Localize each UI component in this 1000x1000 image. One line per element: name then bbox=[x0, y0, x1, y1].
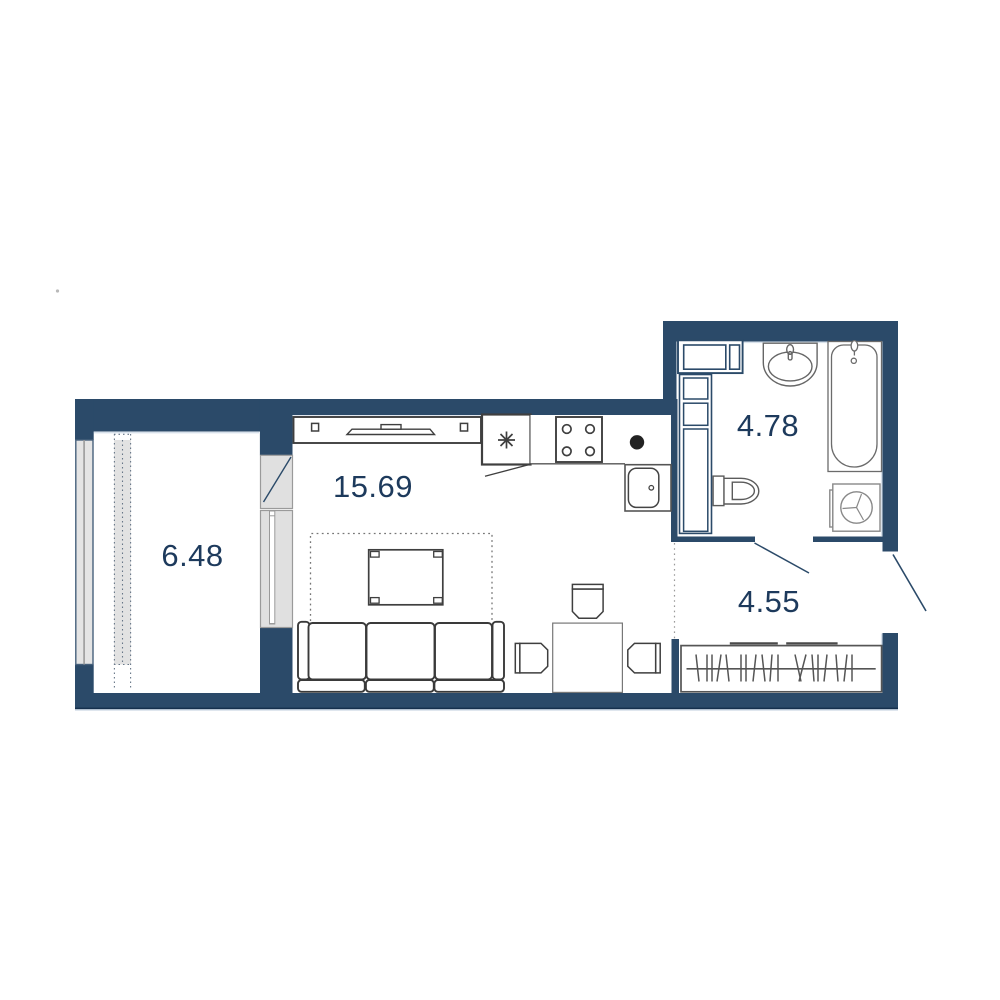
svg-text:4.78: 4.78 bbox=[737, 408, 799, 443]
svg-text:6.48: 6.48 bbox=[161, 538, 223, 573]
svg-text:15.69: 15.69 bbox=[333, 469, 413, 504]
svg-text:4.55: 4.55 bbox=[738, 584, 800, 619]
